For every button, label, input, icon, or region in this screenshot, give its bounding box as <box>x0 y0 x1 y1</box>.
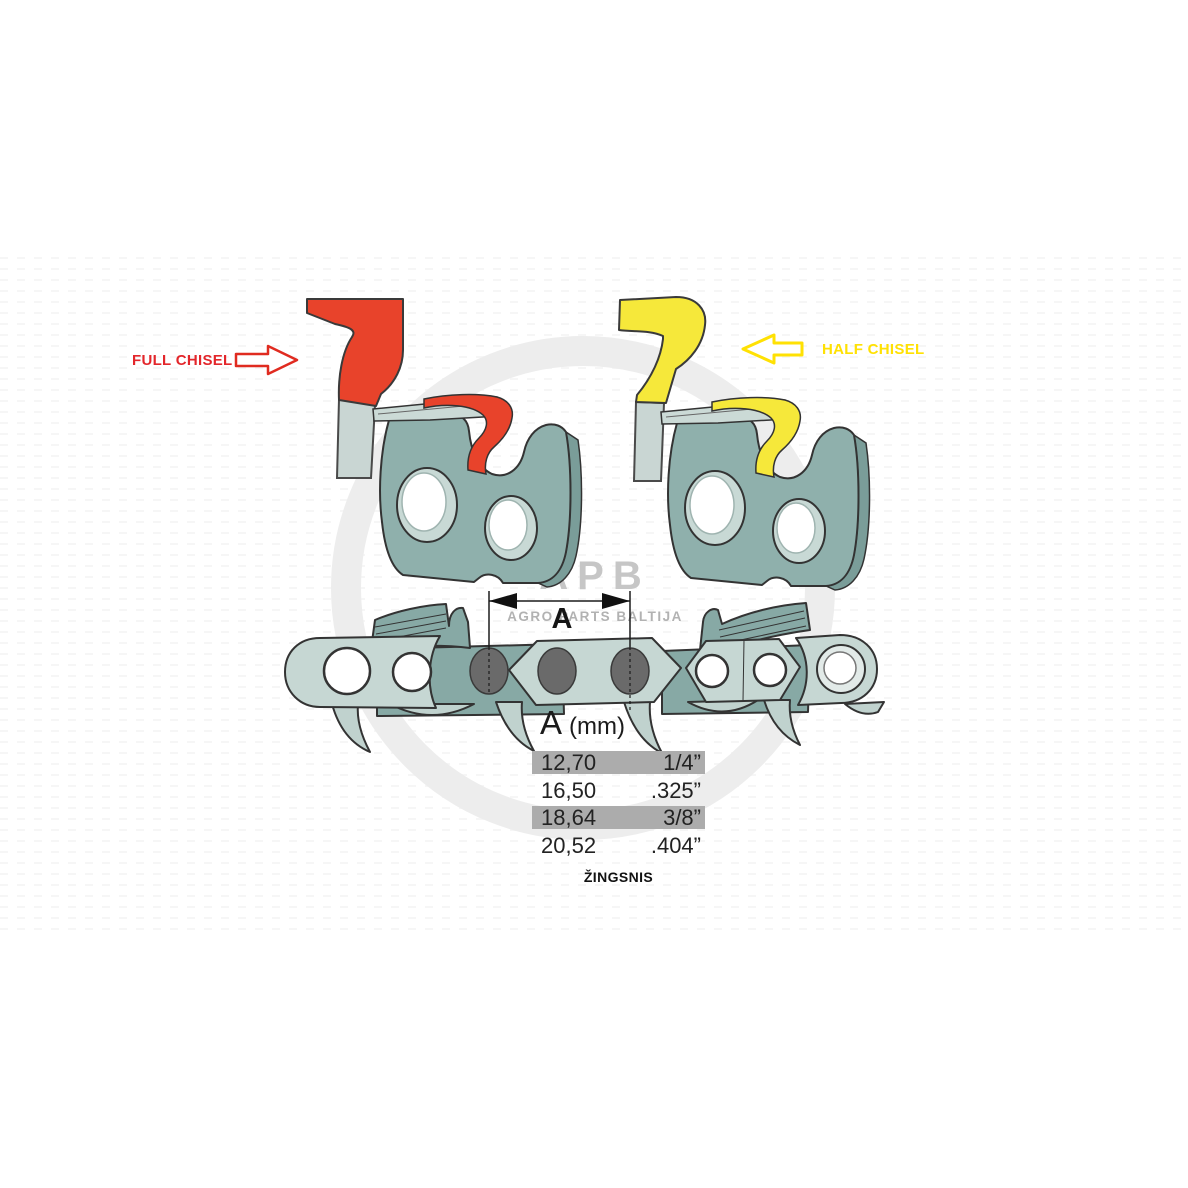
strap-hole <box>393 653 431 691</box>
pitch-mm-value: 16,50 <box>532 779 596 802</box>
half-chisel-side-bar <box>634 402 664 481</box>
pitch-inch-value: .325” <box>651 779 705 802</box>
pitch-inch-value: 1/4” <box>663 751 705 774</box>
full-chisel-arrow-right-icon <box>236 346 297 374</box>
dimension-arrowhead-left-icon <box>489 593 517 609</box>
full-chisel-cutter-link <box>373 395 582 587</box>
pitch-inch-value: .404” <box>651 834 705 857</box>
pitch-mm-value: 20,52 <box>532 834 596 857</box>
pitch-table-row: 16,50 .325” <box>532 779 705 802</box>
half-chisel-arrow-left-icon <box>743 335 802 363</box>
rivet <box>538 648 576 694</box>
cutter-hole <box>777 503 815 553</box>
half-chisel-cutter-link <box>661 398 870 590</box>
pitch-table-header: A (mm) <box>540 705 625 741</box>
pitch-mm-value: 12,70 <box>532 751 596 774</box>
dimension-arrowhead-right-icon <box>602 593 630 609</box>
strap-hole <box>824 652 856 684</box>
strap-hole <box>324 648 370 694</box>
full-chisel-side-bar <box>337 399 375 478</box>
pitch-caption: ŽINGSNIS <box>532 869 705 885</box>
half-chisel-label: HALF CHISEL <box>822 341 924 358</box>
strap-hole <box>696 655 728 687</box>
hex-strap-middle <box>509 638 681 705</box>
full-chisel-cutter-shape <box>307 299 403 406</box>
pitch-table-row: 12,70 1/4” <box>532 751 705 774</box>
pitch-table-row: 20,52 .404” <box>532 834 705 857</box>
cutter-hole <box>489 500 527 550</box>
strap-hole <box>754 654 786 686</box>
pitch-header-letter: A <box>540 705 562 741</box>
full-chisel-label: FULL CHISEL <box>132 352 233 369</box>
pitch-table: 12,70 1/4” 16,50 .325” 18,64 3/8” 20,52 … <box>532 751 705 861</box>
chainsaw-chain-pitch-diagram: APB AGRO PARTS BALTIJA <box>0 0 1188 1188</box>
pitch-table-row: 18,64 3/8” <box>532 806 705 829</box>
pitch-header-unit: (mm) <box>569 713 625 741</box>
cutter-hole <box>402 473 446 531</box>
cutter-hole <box>690 476 734 534</box>
pitch-dimension-label: A <box>536 603 588 636</box>
rivets <box>470 648 649 694</box>
half-chisel-cutter-shape <box>619 297 705 403</box>
chain-diagram-art <box>0 0 1188 1188</box>
pitch-inch-value: 3/8” <box>663 806 705 829</box>
pitch-mm-value: 18,64 <box>532 806 596 829</box>
